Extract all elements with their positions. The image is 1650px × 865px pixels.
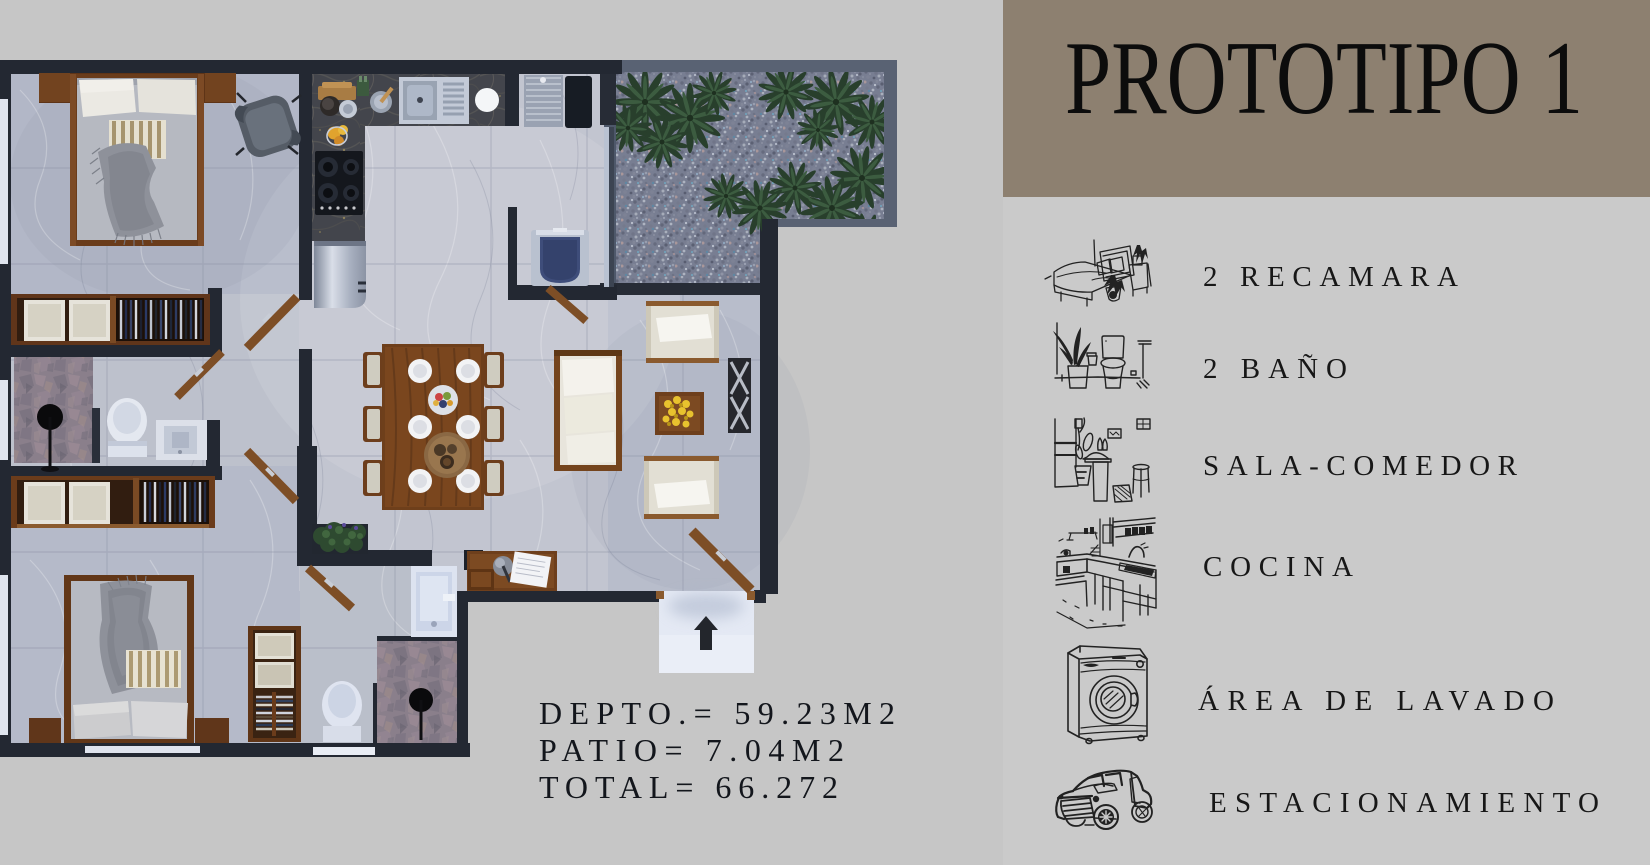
svg-text:ESTACIONAMIENTO: ESTACIONAMIENTO <box>1209 787 1599 819</box>
svg-text:PROTOTIPO 1: PROTOTIPO 1 <box>1065 19 1583 136</box>
svg-text:2 BAÑO: 2 BAÑO <box>1203 353 1347 385</box>
svg-text:2 RECAMARA: 2 RECAMARA <box>1203 261 1458 293</box>
